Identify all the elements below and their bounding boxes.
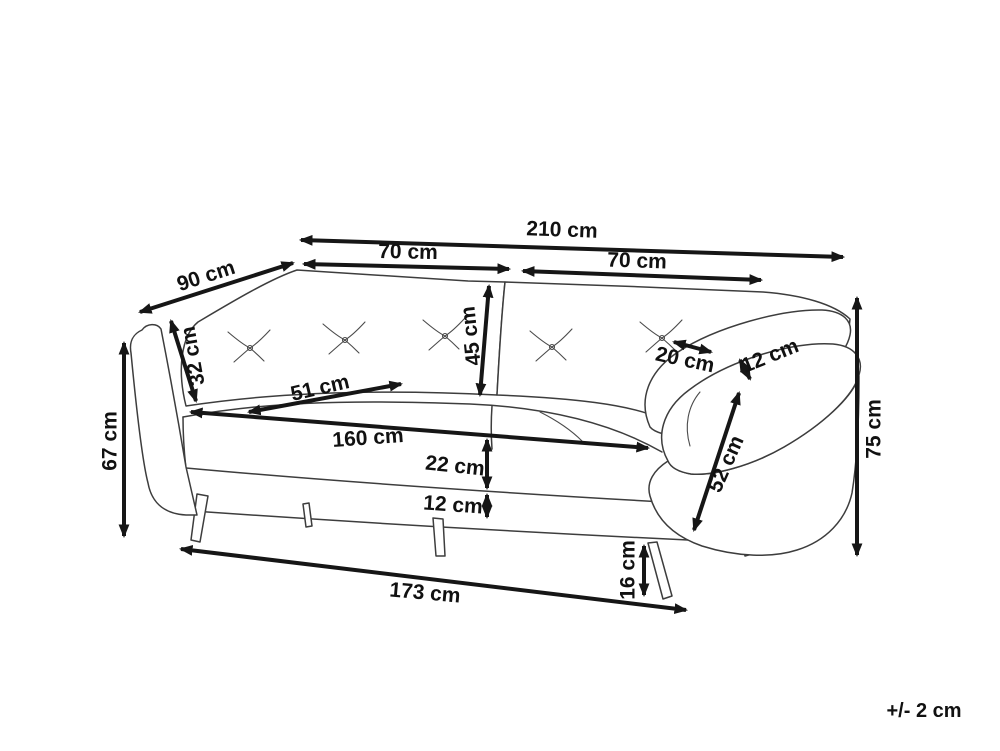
leg-front-right — [648, 542, 672, 599]
sofa-dimension-diagram: 210 cm 70 cm 70 cm 90 cm 32 cm 45 cm 20 … — [0, 0, 1000, 751]
dimension-base-width: 173 cm — [181, 549, 686, 610]
dimension-label-seat-section-left: 70 cm — [378, 240, 438, 264]
dimension-label-arm-side-height: 67 cm — [99, 411, 122, 471]
dimension-seat-band-height: 22 cm — [424, 440, 487, 488]
dimension-overall-height: 75 cm — [857, 298, 886, 555]
dimension-label-seat-section-right: 70 cm — [607, 248, 667, 273]
dimension-base-rail-height: 12 cm — [422, 491, 487, 518]
dimension-label-base-rail-height: 12 cm — [422, 491, 483, 518]
dimension-arm-side-height: 67 cm — [99, 343, 125, 536]
seat-crease — [540, 412, 582, 441]
dimension-label-overall-width: 210 cm — [526, 217, 598, 242]
leg-center — [433, 518, 445, 556]
dimension-label-leg-height: 16 cm — [617, 540, 640, 600]
dimension-label-seat-width: 160 cm — [332, 424, 405, 452]
dimension-label-base-width: 173 cm — [389, 578, 462, 607]
dimension-seat-width: 160 cm — [191, 412, 648, 452]
seat-cushion-split — [491, 406, 492, 449]
diagram-canvas: 210 cm 70 cm 70 cm 90 cm 32 cm 45 cm 20 … — [0, 0, 1000, 751]
leg-rear-left — [303, 503, 312, 527]
dimension-leg-height: 16 cm — [617, 540, 645, 600]
dimension-label-seat-band-height: 22 cm — [424, 451, 486, 480]
tolerance-note: +/- 2 cm — [886, 700, 961, 722]
dimension-label-overall-height: 75 cm — [863, 399, 886, 459]
